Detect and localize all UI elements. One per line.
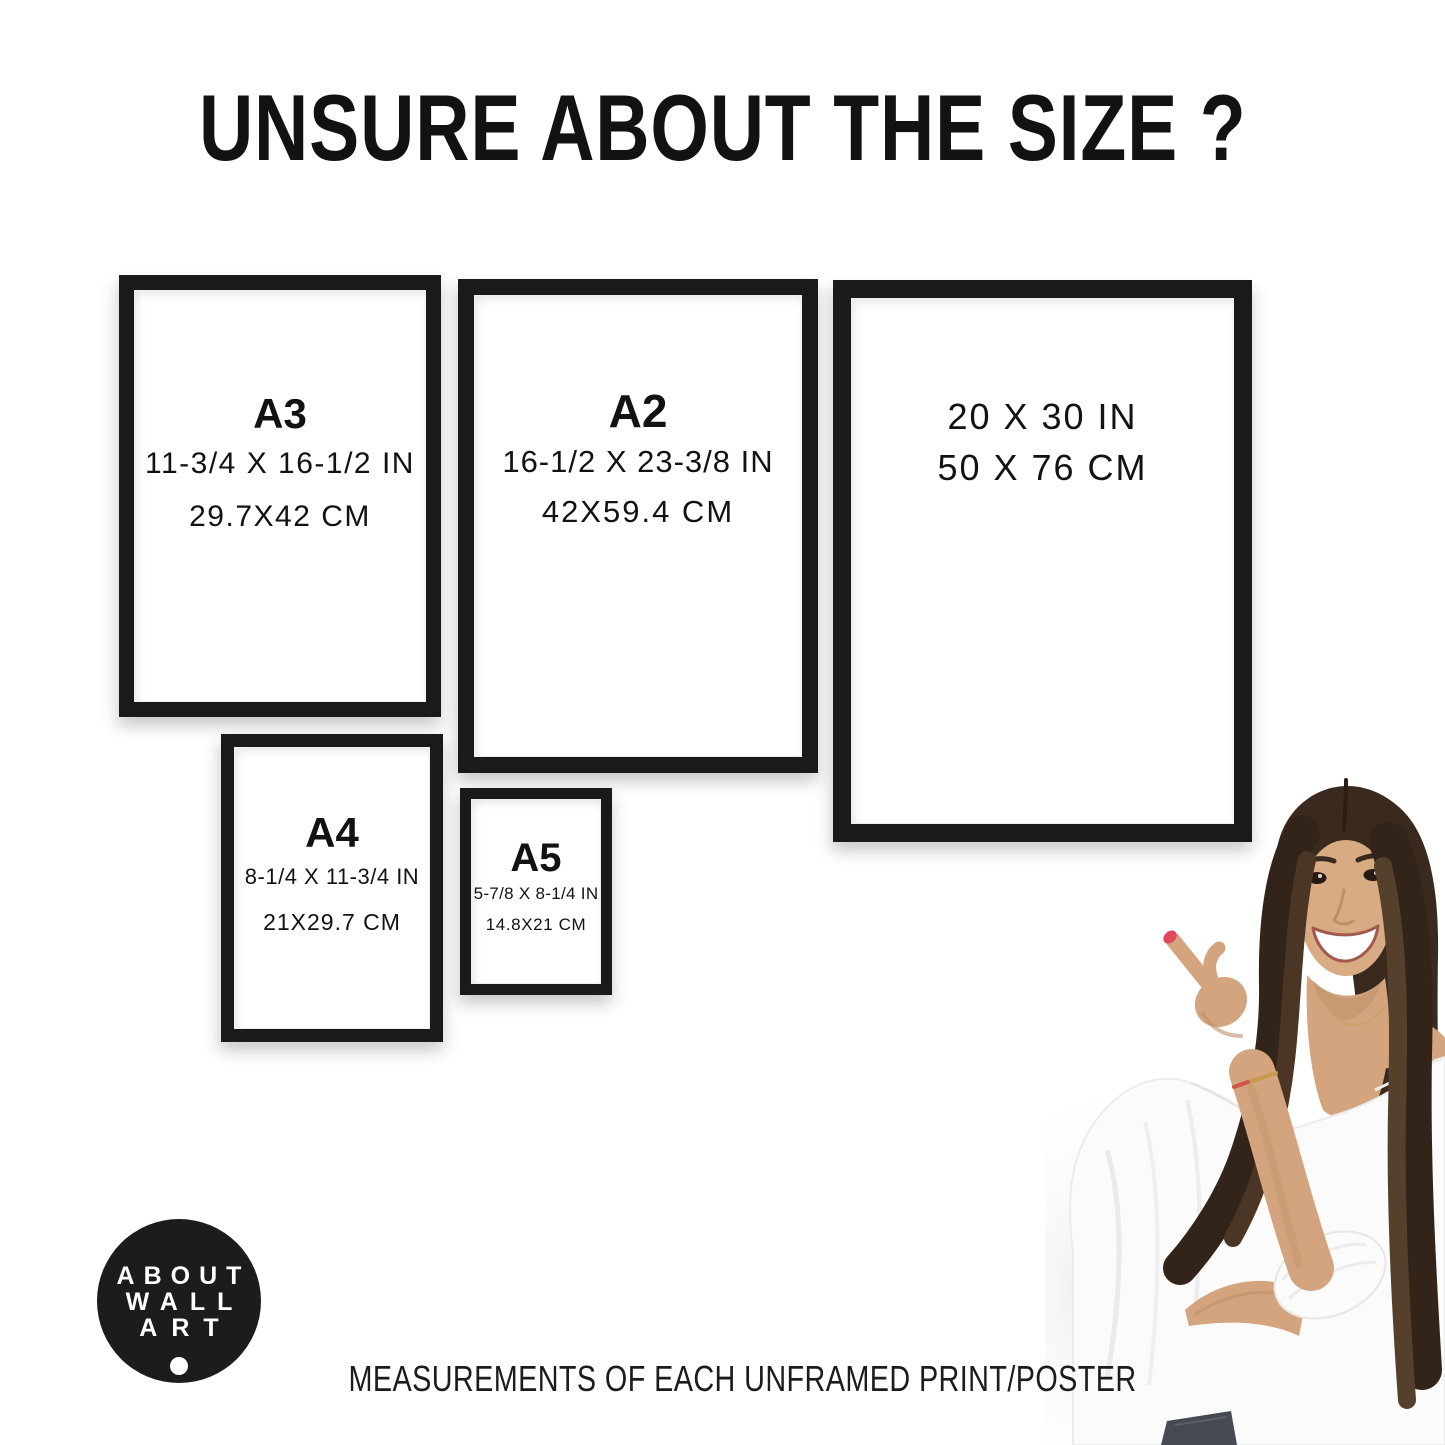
frame-20x30-size-inches: 20 X 30 IN — [851, 394, 1234, 441]
logo-line-about: ABOUT — [97, 1263, 261, 1289]
frame-a4-size-cm: 21X29.7 CM — [234, 908, 430, 938]
frame-a4-size-label: A4 — [234, 809, 430, 857]
footer-caption-text: MEASUREMENTS OF EACH UNFRAMED PRINT/POST… — [349, 1358, 1137, 1400]
logo-line-art: ART — [97, 1315, 261, 1341]
footer-caption: MEASUREMENTS OF EACH UNFRAMED PRINT/POST… — [250, 1358, 1080, 1400]
logo-dot — [170, 1357, 188, 1375]
size-guide-infographic: UNSURE ABOUT THE SIZE ? A3 11-3/4 X 16-1… — [0, 0, 1445, 1445]
pointing-woman-image — [1045, 770, 1445, 1445]
frame-a2: A2 16-1/2 X 23-3/8 IN 42X59.4 CM — [458, 279, 818, 773]
frame-a5: A5 5-7/8 X 8-1/4 IN 14.8X21 CM — [460, 788, 612, 995]
frame-a4-caption: A4 8-1/4 X 11-3/4 IN 21X29.7 CM — [234, 747, 430, 938]
frame-20x30-size-cm: 50 X 76 CM — [851, 445, 1234, 492]
frame-a2-size-cm: 42X59.4 CM — [474, 492, 802, 532]
thumb — [1210, 948, 1219, 982]
frame-a4: A4 8-1/4 X 11-3/4 IN 21X29.7 CM — [221, 734, 443, 1042]
frame-a3-size-cm: 29.7X42 CM — [134, 497, 426, 536]
brand-logo-text: ABOUT WALL ART — [97, 1263, 261, 1341]
frame-a4-size-inches: 8-1/4 X 11-3/4 IN — [234, 863, 430, 892]
frame-a2-caption: A2 16-1/2 X 23-3/8 IN 42X59.4 CM — [474, 295, 802, 532]
frame-a2-size-label: A2 — [474, 385, 802, 438]
frame-a5-size-label: A5 — [471, 835, 601, 881]
model-neck-chest — [1307, 975, 1390, 1118]
frame-a5-size-cm: 14.8X21 CM — [471, 914, 601, 936]
page-title: UNSURE ABOUT THE SIZE ? — [0, 76, 1445, 179]
frame-a5-size-inches: 5-7/8 X 8-1/4 IN — [471, 883, 601, 905]
frame-a5-caption: A5 5-7/8 X 8-1/4 IN 14.8X21 CM — [471, 799, 601, 936]
frame-a3-size-label: A3 — [134, 390, 426, 438]
page-title-text: UNSURE ABOUT THE SIZE ? — [199, 76, 1247, 179]
frame-a2-size-inches: 16-1/2 X 23-3/8 IN — [474, 442, 802, 482]
frame-a3-size-inches: 11-3/4 X 16-1/2 IN — [134, 444, 426, 483]
frame-20x30-caption: 20 X 30 IN 50 X 76 CM — [851, 298, 1234, 492]
brand-logo: ABOUT WALL ART — [97, 1219, 261, 1383]
logo-line-wall: WALL — [97, 1289, 261, 1315]
frame-a3-caption: A3 11-3/4 X 16-1/2 IN 29.7X42 CM — [134, 290, 426, 536]
hair-part-line — [1344, 780, 1346, 830]
frame-a3: A3 11-3/4 X 16-1/2 IN 29.7X42 CM — [119, 275, 441, 717]
frame-20x30: 20 X 30 IN 50 X 76 CM — [833, 280, 1252, 842]
